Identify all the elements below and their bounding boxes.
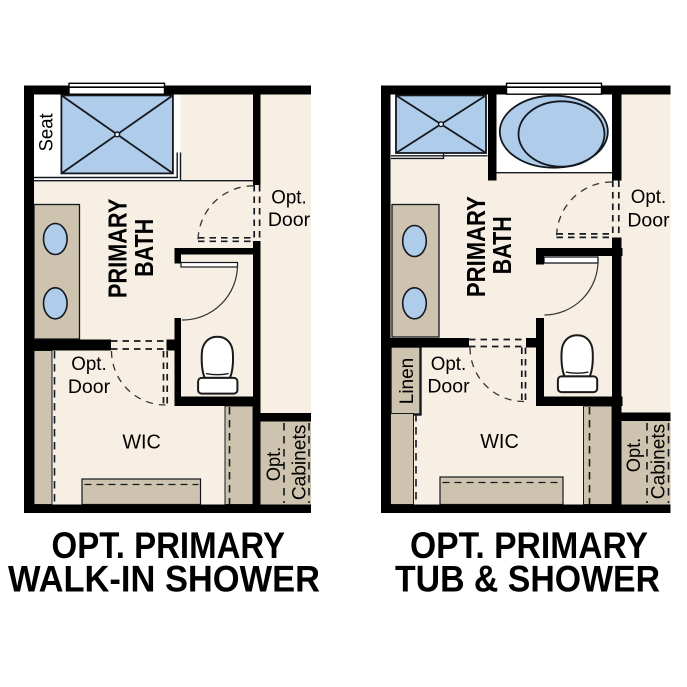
svg-text:BATH: BATH (131, 219, 159, 277)
svg-text:Cabinets: Cabinets (290, 425, 311, 501)
svg-text:Opt.: Opt. (271, 187, 307, 209)
svg-text:TUB & SHOWER: TUB & SHOWER (395, 559, 660, 600)
svg-text:Seat: Seat (36, 113, 57, 152)
svg-text:PRIMARY: PRIMARY (105, 199, 133, 299)
svg-text:WALK-IN SHOWER: WALK-IN SHOWER (8, 559, 320, 600)
svg-text:Door: Door (268, 209, 311, 231)
svg-text:Opt.: Opt. (624, 438, 645, 473)
svg-text:Door: Door (427, 376, 470, 398)
svg-text:Door: Door (627, 209, 670, 231)
svg-text:Opt.: Opt. (264, 447, 285, 482)
svg-text:Opt.: Opt. (631, 186, 667, 208)
svg-text:Opt.: Opt. (71, 353, 107, 375)
svg-text:Door: Door (68, 376, 111, 398)
svg-text:WIC: WIC (480, 431, 519, 453)
svg-text:Opt.: Opt. (431, 353, 467, 375)
svg-text:WIC: WIC (122, 432, 161, 454)
svg-text:Cabinets: Cabinets (649, 424, 670, 500)
svg-text:Linen: Linen (396, 358, 418, 405)
svg-text:PRIMARY: PRIMARY (463, 196, 491, 297)
svg-text:BATH: BATH (489, 216, 517, 274)
